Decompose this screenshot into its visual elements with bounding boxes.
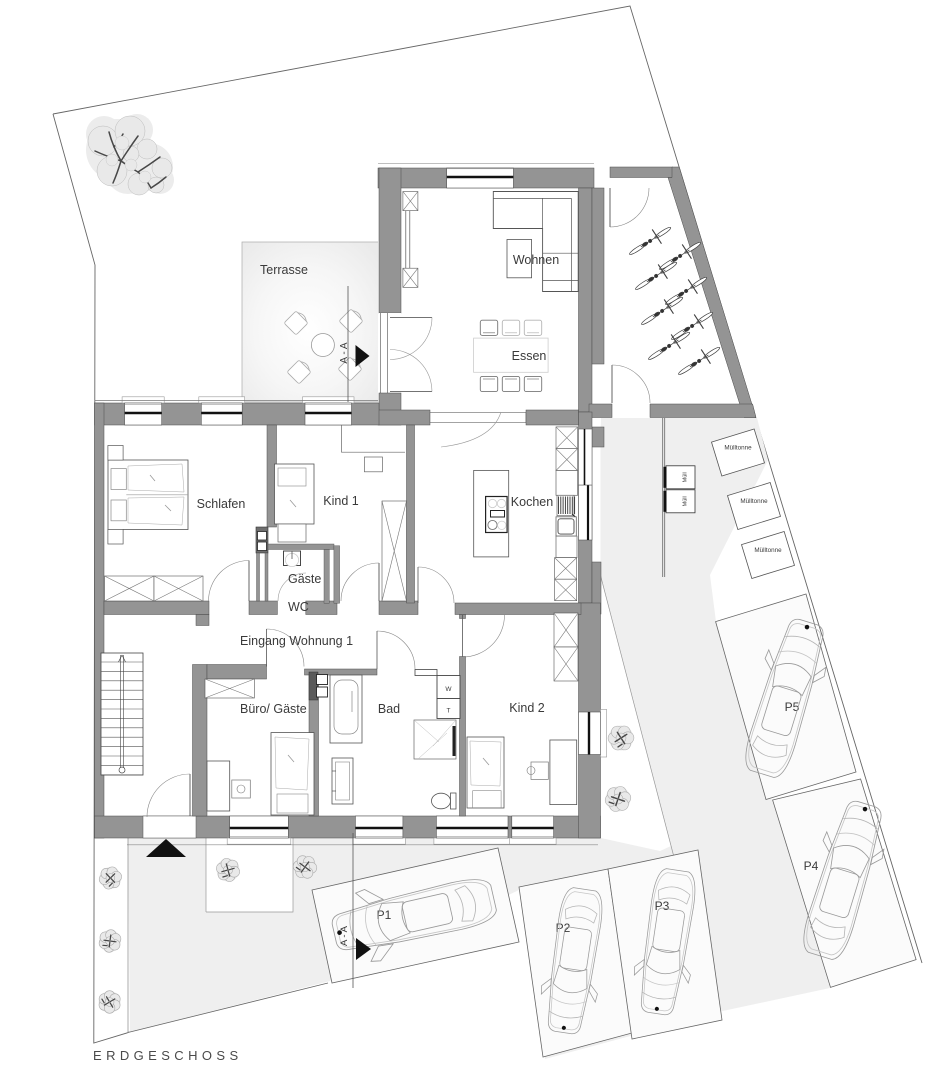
- svg-text:Müll: Müll: [682, 496, 688, 506]
- svg-text:T: T: [447, 708, 451, 715]
- svg-text:Kind 1: Kind 1: [323, 494, 358, 508]
- svg-text:Essen: Essen: [512, 349, 547, 363]
- svg-text:Büro/ Gäste: Büro/ Gäste: [240, 702, 307, 716]
- svg-text:Mülltonne: Mülltonne: [724, 445, 752, 452]
- svg-text:Bad: Bad: [378, 702, 400, 716]
- svg-text:W: W: [445, 686, 452, 693]
- svg-text:ERDGESCHOSS: ERDGESCHOSS: [93, 1048, 243, 1063]
- svg-text:Mülltonne: Mülltonne: [740, 498, 768, 505]
- svg-text:Kind 2: Kind 2: [509, 701, 544, 715]
- svg-text:Wohnen: Wohnen: [513, 253, 559, 267]
- svg-text:Kochen: Kochen: [511, 495, 553, 509]
- svg-text:Eingang Wohnung 1: Eingang Wohnung 1: [240, 634, 353, 648]
- svg-text:P4: P4: [804, 859, 819, 873]
- svg-text:P1: P1: [377, 908, 392, 922]
- svg-text:Terrasse: Terrasse: [260, 263, 308, 277]
- svg-text:P5: P5: [785, 700, 800, 714]
- svg-text:Schlafen: Schlafen: [197, 497, 246, 511]
- svg-text:Müll: Müll: [682, 472, 688, 482]
- svg-text:A - A: A - A: [339, 925, 350, 946]
- svg-text:WC: WC: [288, 600, 309, 614]
- svg-text:Mülltonne: Mülltonne: [754, 547, 782, 554]
- svg-text:Gäste: Gäste: [288, 572, 321, 586]
- svg-text:A - A: A - A: [339, 342, 350, 363]
- svg-text:P3: P3: [655, 899, 670, 913]
